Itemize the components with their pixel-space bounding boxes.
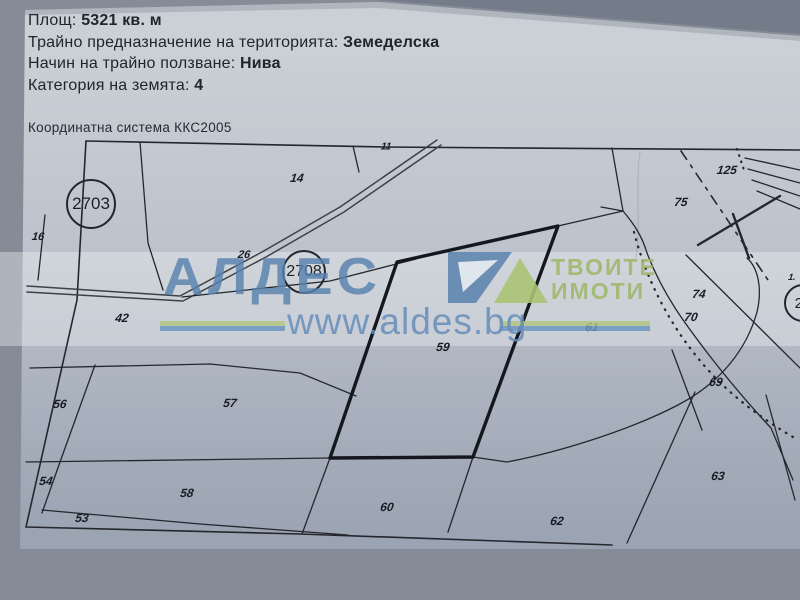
coordinate-system-label: Координатна система ККС2005 [28,120,232,135]
watermark-band [0,252,800,346]
property-header-row: Категория на земята: 4 [28,75,439,97]
header-label: Начин на трайно ползване: [28,55,235,72]
header-value: 4 [194,77,203,94]
cadastral-sketch-photo: 11141257516261.4261597470565769635458605… [0,0,800,600]
property-header: Площ: 5321 кв. мТрайно предназначение на… [28,10,439,96]
property-header-row: Трайно предназначение на територията: Зе… [28,32,439,54]
header-label: Категория на земята: [28,77,190,94]
header-value: Земеделска [343,34,439,51]
header-label: Трайно предназначение на територията: [28,34,338,51]
property-header-row: Начин на трайно ползване: Нива [28,53,439,75]
property-header-row: Площ: 5321 кв. м [28,10,439,32]
header-label: Площ: [28,12,77,29]
header-value: 5321 кв. м [81,12,162,29]
header-value: Нива [240,55,281,72]
